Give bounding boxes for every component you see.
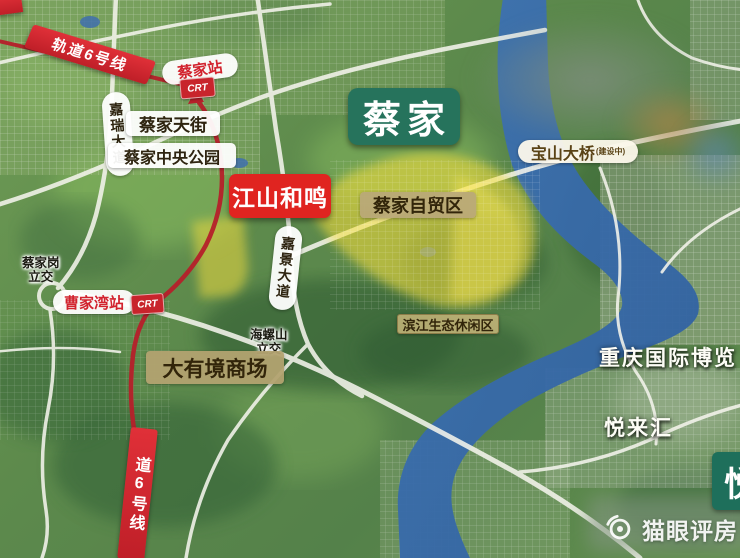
caijia-central-park-text: 蔡家中央公园	[124, 144, 220, 168]
place-free-trade-zone: 蔡家自贸区	[360, 192, 476, 218]
dayoujing-mall-text: 大有境商场	[163, 353, 268, 383]
crt-logo-text: CRT	[187, 82, 208, 95]
partial-label-text: 悦	[724, 457, 740, 506]
region-box-caijia: 蔡家	[348, 88, 460, 145]
free-trade-zone-text: 蔡家自贸区	[373, 192, 463, 218]
place-caijia-central-park: 蔡家中央公园	[108, 143, 236, 168]
baoshan-bridge-note: (建设中)	[596, 146, 625, 157]
caijiagang-line2: 立交	[22, 270, 60, 284]
yuelai-hui-text: 悦来汇	[604, 417, 673, 440]
road-label-baoshan-bridge: 宝山大桥 (建设中)	[518, 140, 638, 163]
place-riverside-eco-zone: 滨江生态休闲区	[397, 314, 499, 334]
watermark: 猫眼评房	[605, 512, 738, 546]
project-name-text: 江山和鸣	[232, 179, 328, 213]
interchange-caijiagang: 蔡家岗 立交	[22, 256, 60, 285]
station-caojiawan: 曹家湾站	[53, 290, 135, 314]
caijia-tianjie-text: 蔡家天街	[139, 111, 207, 136]
crt-metro-logo: CRT	[130, 293, 164, 315]
watermark-text: 猫眼评房	[642, 512, 738, 546]
map-terrain-graphics	[0, 0, 740, 558]
project-box-jiangshan-heming: 江山和鸣	[229, 174, 331, 218]
baoshan-bridge-text: 宝山大桥	[531, 140, 595, 164]
caijiagang-line1: 蔡家岗	[22, 256, 60, 270]
zone-plots-texture	[330, 160, 540, 310]
place-dayoujing-mall: 大有境商场	[146, 351, 284, 384]
place-expo-center: 重庆国际博览	[599, 342, 737, 372]
expo-center-text: 重庆国际博览	[599, 347, 737, 370]
region-name-text: 蔡家	[363, 89, 451, 144]
crt-logo-text: CRT	[137, 298, 158, 310]
station-caojiawan-label: 曹家湾站	[64, 292, 124, 313]
caijia-area-map: 轨道6号线 蔡家站 CRT 嘉瑞大道 蔡家天街 蔡家中央公园 蔡家 宝山大桥 (…	[0, 0, 740, 558]
riverside-eco-zone-text: 滨江生态休闲区	[402, 315, 493, 334]
crt-metro-logo: CRT	[179, 77, 216, 100]
place-caijia-tianjie: 蔡家天街	[126, 111, 220, 136]
hailuoshan-line1: 海螺山	[250, 328, 288, 342]
partial-teal-label-box: 悦	[712, 452, 740, 510]
cat-eye-logo-icon	[605, 514, 635, 544]
place-yuelai-hui: 悦来汇	[604, 412, 673, 442]
jiajing-avenue-text: 嘉景大道	[272, 235, 299, 301]
